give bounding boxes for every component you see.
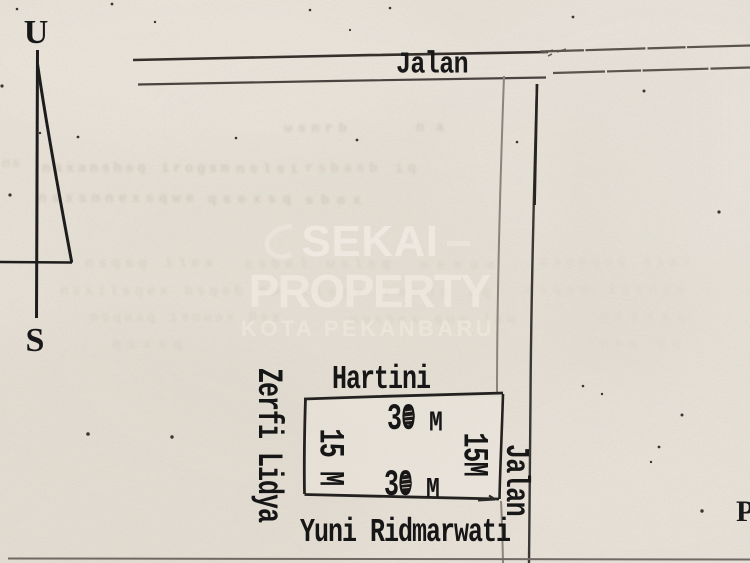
- svg-text:PROPERTY: PROPERTY: [248, 265, 490, 317]
- svg-text:Yuni Ridmarwati: Yuni Ridmarwati: [300, 513, 510, 552]
- svg-text:Hartini: Hartini: [332, 360, 430, 399]
- svg-text:P: P: [736, 495, 750, 528]
- svg-text:KOTA PEKANBARU: KOTA PEKANBARU: [241, 316, 495, 341]
- svg-text:ns: ns: [2, 156, 20, 172]
- svg-text:15M: 15M: [453, 433, 492, 477]
- svg-text:U: U: [24, 14, 49, 51]
- svg-text:S: S: [26, 322, 45, 359]
- svg-text:Zerfi Lidya: Zerfi Lidya: [247, 368, 286, 523]
- svg-text:Jalan: Jalan: [396, 48, 468, 82]
- svg-text:M: M: [429, 406, 443, 439]
- svg-text:M: M: [426, 473, 440, 506]
- svg-text:Jalan: Jalan: [497, 444, 536, 516]
- svg-text:rsbasb iq: rsbasb iq: [305, 161, 416, 177]
- svg-text:15 M: 15 M: [309, 429, 348, 486]
- svg-text:SEKAI: SEKAI: [302, 217, 439, 266]
